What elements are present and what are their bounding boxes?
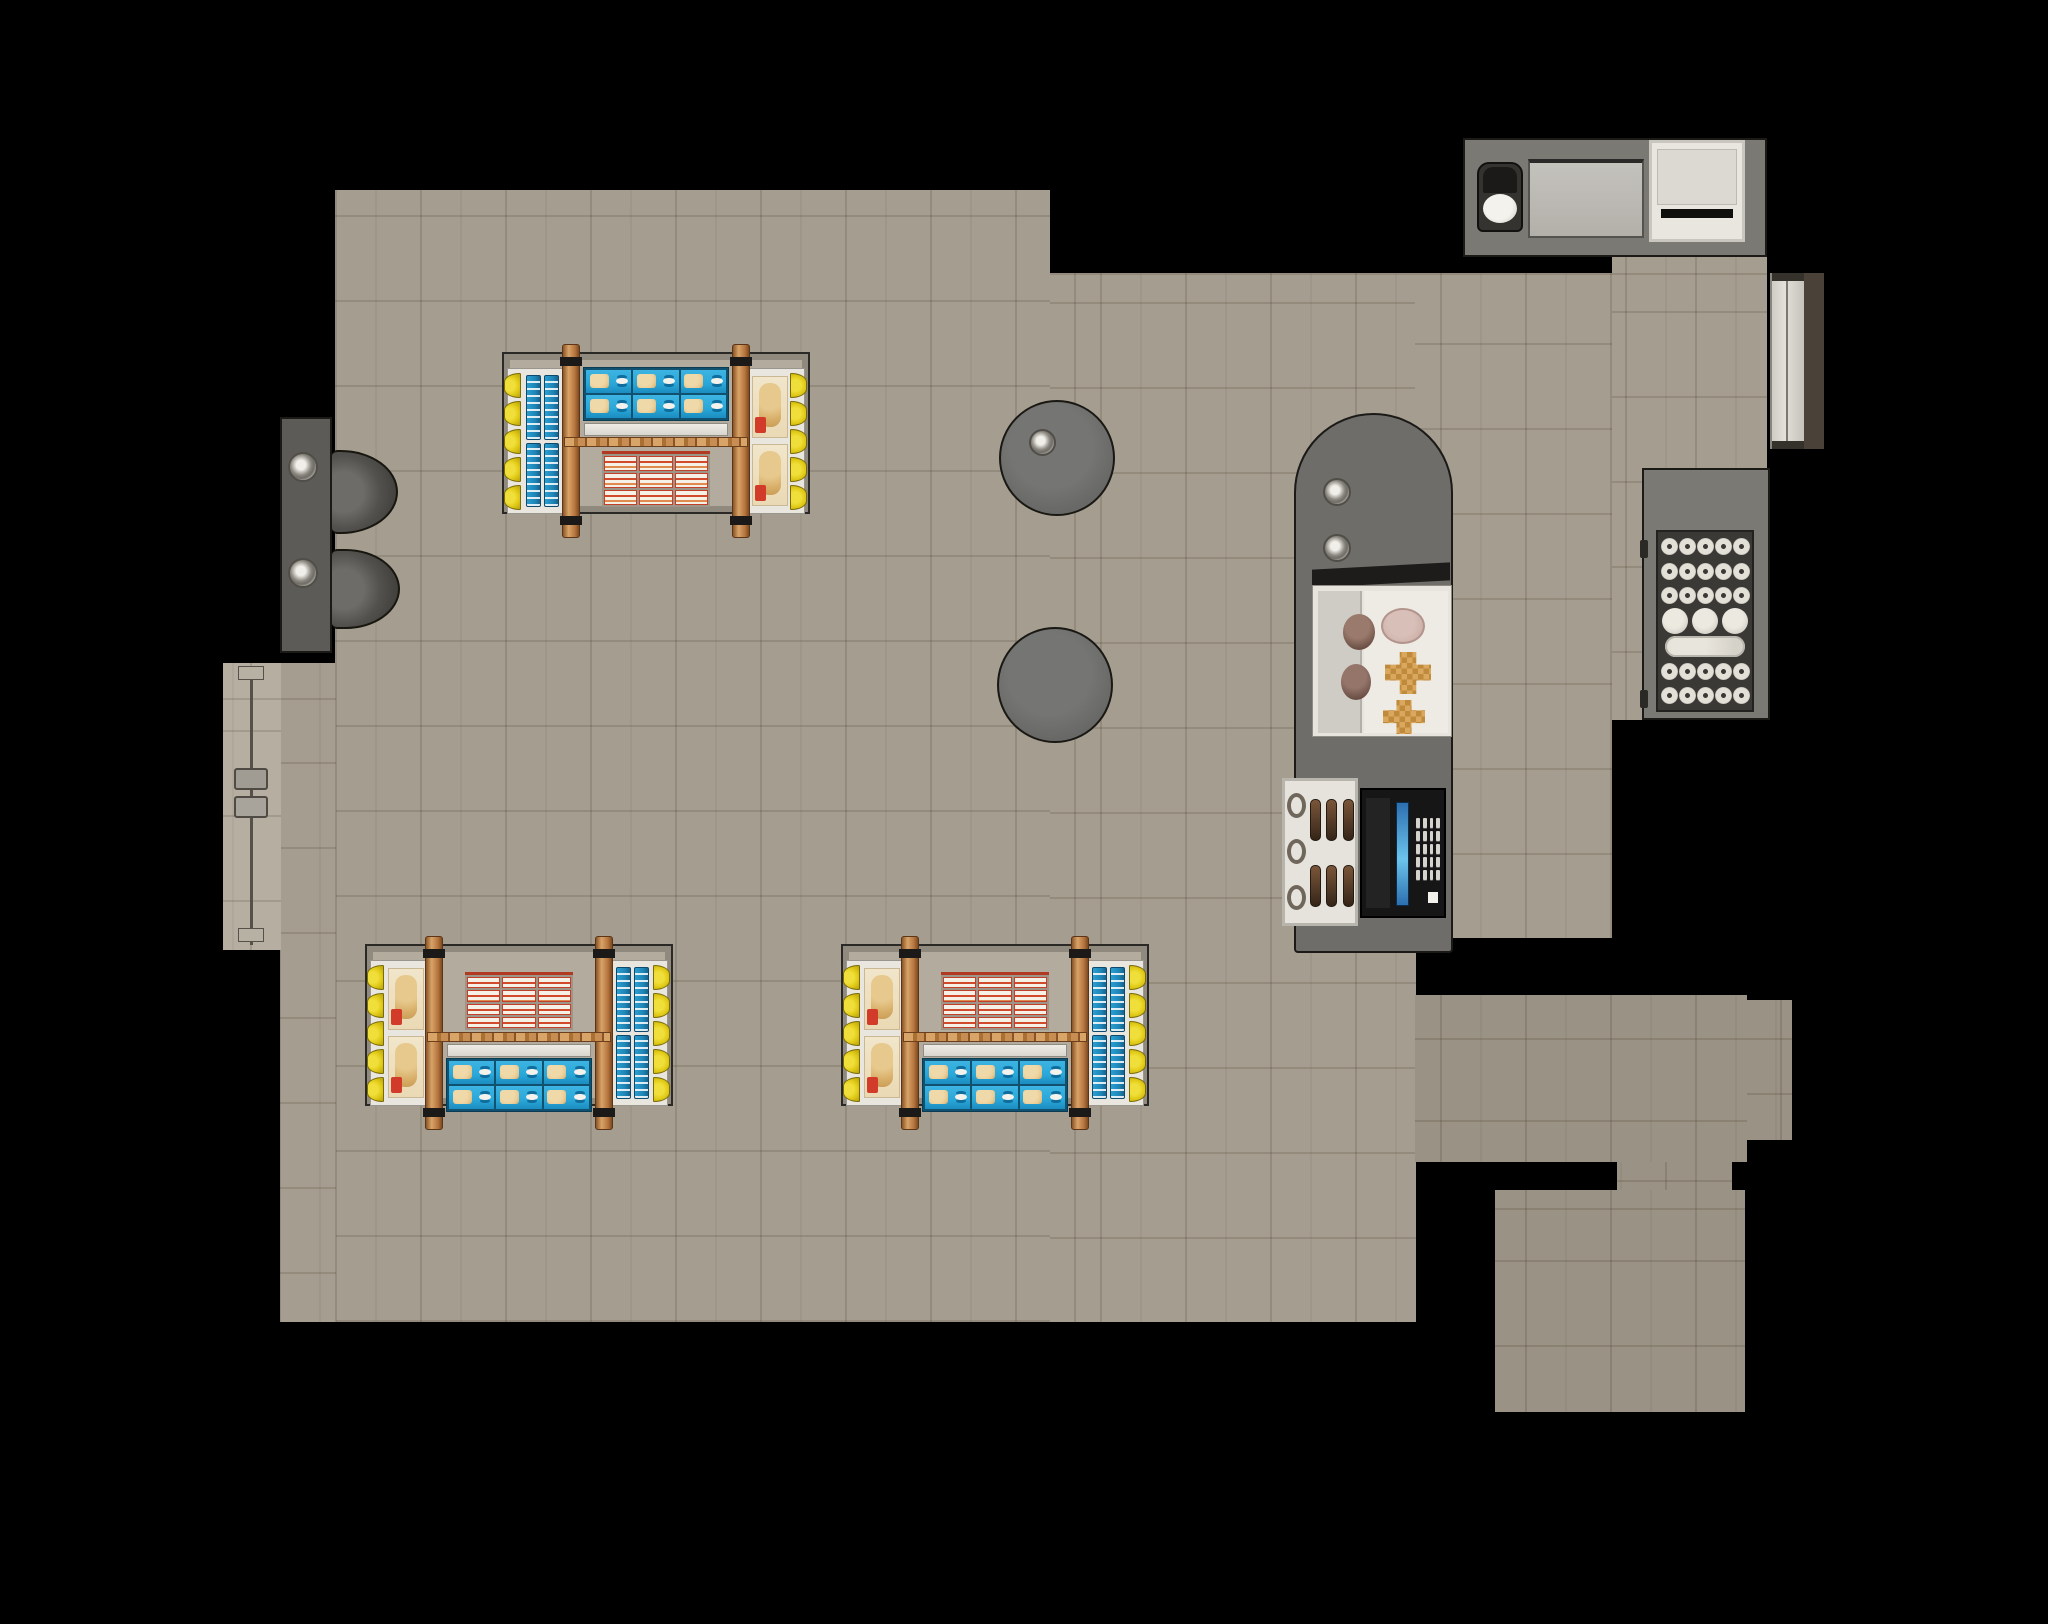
donut-s-item (1679, 687, 1696, 704)
bcell-item (1020, 1061, 1065, 1084)
donut-loaf-item (1665, 636, 1745, 657)
donut-s-item (1697, 687, 1714, 704)
rcell-item (467, 1017, 500, 1028)
bpack-item (544, 375, 559, 440)
rcell-item (978, 990, 1011, 1001)
donut-s-item (1679, 663, 1696, 680)
bcell-item (925, 1061, 970, 1084)
eclair-item (1326, 799, 1337, 841)
rcell-item (943, 990, 976, 1001)
brown-donut (1341, 664, 1371, 700)
bcell-item (633, 370, 678, 393)
rcell-item (639, 490, 672, 505)
door-handle-icon (234, 768, 268, 790)
case-left-tray (1318, 591, 1362, 733)
donut-s-item (1733, 563, 1750, 580)
blue-box-shelf (583, 367, 729, 421)
bcell-item (633, 395, 678, 418)
rcell-item (538, 990, 571, 1001)
pretzel-ring-icon (1287, 885, 1306, 910)
donut-s-item (1697, 663, 1714, 680)
scallop-item (1129, 1021, 1146, 1046)
rcell-item (943, 1004, 976, 1015)
bread-item (864, 1036, 900, 1098)
coffee-grinder-icon (288, 558, 318, 588)
scallop-item (790, 373, 807, 398)
donut-row (1660, 659, 1750, 684)
scallop-item (1129, 965, 1146, 990)
donut-s-item (1661, 687, 1678, 704)
wood-rail (564, 437, 748, 447)
key-item (1436, 844, 1440, 854)
lemon-tarts (790, 371, 808, 511)
side-door[interactable] (1770, 273, 1804, 449)
scallop-item (504, 401, 521, 426)
bpack-item (1110, 1035, 1125, 1100)
bcell-item (972, 1061, 1017, 1084)
bcell-item (972, 1086, 1017, 1109)
scallop-item (790, 457, 807, 482)
scallop-item (1129, 993, 1146, 1018)
side-tray (507, 368, 565, 514)
donut-s-item (1697, 587, 1714, 604)
box-inner (1657, 149, 1737, 205)
donut-s-item (1661, 563, 1678, 580)
supply-box (1649, 140, 1745, 242)
floor-main-left-lower (280, 663, 336, 1322)
side-tray (1086, 960, 1144, 1106)
donut-s-item (1715, 538, 1732, 555)
round-cafe-table[interactable] (997, 627, 1113, 743)
rcell-item (978, 977, 1011, 988)
key-item (1416, 818, 1420, 828)
bpack-item (616, 1035, 631, 1100)
bread-bags (863, 965, 900, 1101)
bcell-item (496, 1061, 541, 1084)
donut-row (1660, 583, 1750, 608)
register-screen[interactable] (1396, 802, 1409, 906)
rcell-item (502, 977, 535, 988)
rcell-item (639, 473, 672, 488)
rcell-item (1014, 990, 1047, 1001)
pink-pastry (1381, 608, 1425, 644)
rcell-item (467, 1004, 500, 1015)
gondola-display-table[interactable] (365, 944, 673, 1122)
register-keypad[interactable] (1414, 816, 1442, 882)
bcell-item (544, 1086, 589, 1109)
scallop-item (843, 965, 860, 990)
donut-s-item (1697, 563, 1714, 580)
donut-row (1660, 634, 1750, 659)
donut-s-item (1661, 538, 1678, 555)
rcell-item (675, 490, 708, 505)
door-mat (1804, 273, 1824, 449)
scallop-item (367, 965, 384, 990)
rcell-item (538, 977, 571, 988)
bread-item (388, 1036, 424, 1098)
donut-display-cabinet[interactable] (1642, 468, 1770, 720)
eclair-item (1343, 799, 1354, 841)
key-item (1436, 818, 1440, 828)
donut-row (1660, 683, 1750, 708)
napkin-dispenser-icon (1323, 478, 1351, 506)
lemon-tarts (653, 963, 671, 1103)
pretzel-ring-icon (1287, 839, 1306, 864)
bread-bags (751, 373, 788, 509)
wood-rail (903, 1032, 1087, 1042)
napkin-dispenser-icon (1029, 429, 1056, 456)
red-box-shelf (602, 451, 710, 507)
key-item (1436, 857, 1440, 867)
donut-s-item (1679, 563, 1696, 580)
donut-s-item (1733, 663, 1750, 680)
bpack-item (1092, 1035, 1107, 1100)
blue-box-shelf (446, 1058, 592, 1112)
rcell-item (604, 456, 637, 471)
key-item (1436, 831, 1440, 841)
donut-s-item (1679, 538, 1696, 555)
side-tray (610, 960, 668, 1106)
rcell-item (943, 977, 976, 988)
key-item (1430, 870, 1434, 880)
key-item (1416, 870, 1420, 880)
scallop-item (367, 1077, 384, 1102)
rcell-item (1014, 1004, 1047, 1015)
key-item (1430, 844, 1434, 854)
lemon-tarts (843, 963, 861, 1103)
scallop-item (653, 965, 670, 990)
rcell-item (978, 1017, 1011, 1028)
scallop-item (1129, 1077, 1146, 1102)
bpack-item (616, 967, 631, 1032)
bcell-item (681, 395, 726, 418)
scallop-item (790, 401, 807, 426)
rcell-item (675, 473, 708, 488)
donut-s-item (1715, 663, 1732, 680)
donut-s-item (1733, 587, 1750, 604)
donut-l-item (1722, 608, 1748, 634)
scallop-item (367, 1049, 384, 1074)
scallop-item (653, 1021, 670, 1046)
scallop-item (504, 373, 521, 398)
bcell-item (586, 370, 631, 393)
coffee-machine-icon (1477, 162, 1523, 232)
donut-s-item (1715, 687, 1732, 704)
rcell-item (467, 990, 500, 1001)
scallop-item (790, 429, 807, 454)
box-slot (1661, 209, 1733, 218)
receipt-chip (1428, 892, 1438, 903)
shelf-edge (584, 423, 728, 436)
scallop-item (1129, 1049, 1146, 1074)
round-cafe-table[interactable] (999, 400, 1115, 516)
donut-s-item (1661, 663, 1678, 680)
door-hinge-icon (238, 928, 264, 942)
rcell-item (639, 456, 672, 471)
bcell-item (496, 1086, 541, 1109)
door-hinge-icon (238, 666, 264, 680)
rcell-item (502, 990, 535, 1001)
donut-l-item (1662, 608, 1688, 634)
shelf-edge (923, 1044, 1067, 1057)
scallop-item (504, 429, 521, 454)
bpack-item (1092, 967, 1107, 1032)
donut-s-item (1715, 587, 1732, 604)
blue-snack-packs (614, 965, 651, 1101)
bread-bags (387, 965, 424, 1101)
scallop-item (653, 1049, 670, 1074)
side-tray (846, 960, 904, 1106)
blue-snack-packs (524, 373, 561, 509)
cabinet-handle-icon (1640, 540, 1648, 558)
bcell-item (1020, 1086, 1065, 1109)
rcell-item (604, 490, 637, 505)
donut-s-item (1661, 587, 1678, 604)
bcell-item (449, 1086, 494, 1109)
side-tray (370, 960, 428, 1106)
rcell-item (943, 1017, 976, 1028)
rcell-item (538, 1017, 571, 1028)
pastry-display-case[interactable] (1312, 585, 1452, 737)
eclair-item (1326, 865, 1337, 907)
key-item (1423, 831, 1427, 841)
key-item (1423, 844, 1427, 854)
eclair-item (1343, 865, 1354, 907)
lemon-tarts (504, 371, 522, 511)
bcell-item (681, 370, 726, 393)
bpack-item (526, 443, 541, 508)
gondola-display-table[interactable] (502, 352, 810, 530)
gondola-display-table[interactable] (841, 944, 1149, 1122)
door-seam (1786, 273, 1788, 449)
scallop-item (653, 993, 670, 1018)
donut-s-item (1733, 538, 1750, 555)
bcell-item (925, 1086, 970, 1109)
bpack-item (634, 967, 649, 1032)
floorplan-canvas (0, 0, 2048, 1624)
bcell-item (449, 1061, 494, 1084)
scallop-item (504, 457, 521, 482)
key-item (1430, 818, 1434, 828)
wood-rail (427, 1032, 611, 1042)
donut-row (1660, 608, 1750, 634)
blue-box-shelf (922, 1058, 1068, 1112)
key-item (1430, 831, 1434, 841)
rcell-item (1014, 977, 1047, 988)
pretzel-ring-icon (1287, 793, 1306, 818)
bread-item (864, 968, 900, 1030)
lemon-tarts (1129, 963, 1147, 1103)
scallop-item (843, 1021, 860, 1046)
rcell-item (604, 473, 637, 488)
bcell-item (544, 1061, 589, 1084)
key-item (1416, 857, 1420, 867)
rcell-item (1014, 1017, 1047, 1028)
coffee-grinder-icon (288, 452, 318, 482)
key-item (1416, 831, 1420, 841)
donut-l-item (1692, 608, 1718, 634)
scallop-item (843, 1049, 860, 1074)
bread-item (388, 968, 424, 1030)
rcell-item (538, 1004, 571, 1015)
donut-s-item (1715, 563, 1732, 580)
red-box-shelf (941, 972, 1049, 1030)
key-item (1416, 844, 1420, 854)
machine-hood (1483, 167, 1517, 193)
griddle-panel (1528, 159, 1644, 238)
bpack-item (1110, 967, 1125, 1032)
bread-item (752, 444, 788, 506)
donut-s-item (1679, 587, 1696, 604)
scallop-item (504, 485, 521, 510)
scallop-item (653, 1077, 670, 1102)
key-item (1436, 870, 1440, 880)
cup-icon (1483, 194, 1517, 223)
donut-s-item (1697, 538, 1714, 555)
eclair-item (1310, 799, 1321, 841)
side-tray (747, 368, 805, 514)
bcell-item (586, 395, 631, 418)
shelf-edge (447, 1044, 591, 1057)
key-item (1423, 870, 1427, 880)
bpack-item (544, 443, 559, 508)
lemon-tarts (367, 963, 385, 1103)
donut-s-item (1733, 687, 1750, 704)
eclair-tray[interactable] (1282, 778, 1358, 926)
donut-tray (1656, 530, 1754, 712)
register-shadow (1366, 798, 1390, 908)
bpack-item (634, 1035, 649, 1100)
rcell-item (502, 1017, 535, 1028)
rcell-item (467, 977, 500, 988)
key-item (1423, 857, 1427, 867)
blue-snack-packs (1090, 965, 1127, 1101)
door-cap (1772, 273, 1806, 281)
backroom-a-ext (1747, 1000, 1792, 1140)
napkin-dispenser-icon (1323, 534, 1351, 562)
scallop-item (790, 485, 807, 510)
key-item (1430, 857, 1434, 867)
bpack-item (526, 375, 541, 440)
backroom-corridor (1617, 1162, 1732, 1190)
scallop-item (843, 1077, 860, 1102)
backroom-a (1415, 995, 1747, 1162)
scallop-item (367, 1021, 384, 1046)
door-cap (1772, 441, 1806, 449)
bread-item (752, 376, 788, 438)
cash-register[interactable] (1360, 788, 1446, 918)
brown-donut (1343, 614, 1375, 650)
door-handle-icon (234, 796, 268, 818)
red-box-shelf (465, 972, 573, 1030)
cabinet-handle-icon (1640, 690, 1648, 708)
rcell-item (502, 1004, 535, 1015)
eclair-grid (1309, 789, 1355, 917)
scallop-item (367, 993, 384, 1018)
key-item (1423, 818, 1427, 828)
donut-row (1660, 534, 1750, 559)
donut-row (1660, 559, 1750, 584)
scallop-item (843, 993, 860, 1018)
backroom-b (1495, 1190, 1745, 1412)
rcell-item (675, 456, 708, 471)
eclair-item (1310, 865, 1321, 907)
prep-counter[interactable] (1463, 138, 1767, 257)
rcell-item (978, 1004, 1011, 1015)
